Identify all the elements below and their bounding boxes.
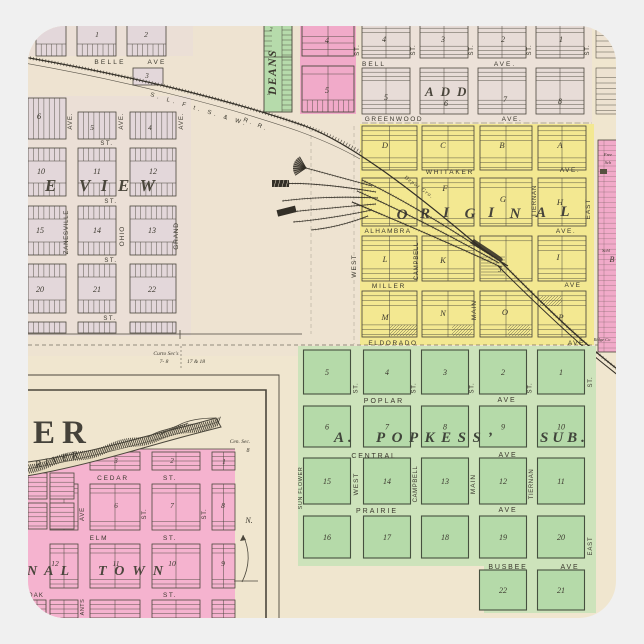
svg-text:AVE.: AVE. — [119, 112, 125, 129]
svg-text:AVE.: AVE. — [560, 167, 580, 174]
svg-text:4: 4 — [382, 35, 386, 44]
svg-text:7: 7 — [170, 501, 174, 510]
svg-text:BUSBEE: BUSBEE — [488, 564, 527, 571]
svg-text:Curto Sec's: Curto Sec's — [153, 351, 178, 357]
svg-text:2: 2 — [144, 30, 148, 39]
svg-text:17: 17 — [383, 533, 392, 542]
svg-text:MILLER: MILLER — [372, 283, 406, 290]
svg-text:6: 6 — [444, 99, 448, 108]
svg-text:ELM: ELM — [90, 535, 109, 542]
svg-text:8: 8 — [221, 501, 225, 510]
svg-text:7- 8: 7- 8 — [160, 359, 169, 365]
svg-text:22: 22 — [499, 586, 507, 595]
svg-text:NAL: NAL — [26, 564, 76, 579]
svg-text:2: 2 — [501, 35, 505, 44]
svg-text:CAMPBELL: CAMPBELL — [413, 466, 419, 503]
svg-text:CENTRAL: CENTRAL — [351, 453, 396, 460]
svg-text:D: D — [381, 140, 389, 150]
svg-text:F: F — [441, 183, 448, 193]
svg-text:ST.: ST. — [412, 382, 418, 393]
svg-text:4: 4 — [385, 368, 389, 377]
svg-text:1: 1 — [222, 458, 226, 466]
svg-text:ST.: ST. — [411, 44, 417, 55]
svg-text:ST.: ST. — [100, 141, 113, 147]
svg-text:POPLAR: POPLAR — [364, 398, 404, 405]
svg-text:AVE: AVE — [80, 507, 86, 521]
svg-text:3: 3 — [442, 368, 447, 377]
svg-text:9: 9 — [501, 423, 505, 432]
svg-text:EAST: EAST — [585, 199, 592, 220]
svg-text:ADD: ADD — [424, 84, 473, 99]
svg-text:ST.: ST. — [163, 592, 177, 599]
svg-text:6: 6 — [114, 501, 118, 510]
svg-text:MAIN: MAIN — [471, 300, 478, 320]
svg-text:AVE: AVE — [561, 564, 580, 571]
svg-text:TIERNAN: TIERNAN — [529, 469, 535, 500]
svg-text:A: A — [556, 140, 563, 150]
svg-text:14: 14 — [383, 477, 391, 486]
svg-text:L: L — [382, 254, 388, 264]
svg-text:AVE: AVE — [499, 452, 518, 459]
svg-text:12: 12 — [499, 477, 507, 486]
svg-text:ANTS: ANTS — [80, 599, 86, 616]
svg-text:ST.: ST. — [528, 382, 534, 393]
svg-text:G: G — [500, 194, 506, 204]
svg-text:ST.: ST. — [470, 382, 476, 393]
svg-text:17 & 18: 17 & 18 — [187, 359, 205, 365]
svg-text:SUN FLOWER: SUN FLOWER — [298, 467, 304, 510]
svg-text:TOWN: TOWN — [98, 564, 171, 579]
svg-text:M: M — [380, 312, 389, 322]
svg-text:MAIN: MAIN — [470, 474, 477, 494]
svg-text:15: 15 — [36, 226, 44, 235]
svg-text:AVE.: AVE. — [179, 112, 185, 129]
svg-text:6: 6 — [325, 423, 329, 432]
svg-text:14: 14 — [93, 226, 101, 235]
svg-text:12: 12 — [149, 167, 157, 176]
svg-text:AVE: AVE — [147, 59, 166, 66]
svg-text:22: 22 — [148, 285, 156, 294]
svg-text:Free: Free — [603, 152, 612, 157]
svg-text:A: A — [535, 205, 546, 221]
svg-text:4: 4 — [148, 123, 152, 132]
svg-text:5: 5 — [90, 123, 94, 132]
svg-text:11: 11 — [557, 477, 564, 486]
svg-text:ST.: ST. — [103, 316, 116, 322]
svg-text:ST.: ST. — [355, 44, 361, 56]
svg-text:ST.: ST. — [163, 535, 177, 542]
svg-text:ST.: ST. — [588, 376, 594, 387]
svg-text:BELLE: BELLE — [94, 59, 125, 66]
svg-text:18: 18 — [441, 533, 449, 542]
svg-text:E: E — [44, 176, 56, 195]
svg-text:WEST: WEST — [353, 473, 360, 496]
svg-text:5: 5 — [325, 368, 329, 377]
svg-text:CEDAR: CEDAR — [97, 475, 129, 482]
svg-text:ST.: ST. — [104, 199, 117, 205]
svg-text:21: 21 — [557, 586, 565, 595]
svg-text:BELL: BELL — [362, 61, 386, 68]
svg-text:10: 10 — [37, 167, 45, 176]
svg-text:3: 3 — [144, 72, 149, 80]
svg-text:DEANS: DEANS — [267, 49, 279, 96]
svg-text:ST.: ST. — [104, 258, 117, 264]
svg-text:16: 16 — [323, 533, 331, 542]
svg-text:I: I — [487, 205, 495, 221]
svg-text:21: 21 — [93, 285, 101, 294]
svg-text:WHITAKER: WHITAKER — [426, 169, 474, 176]
svg-text:13: 13 — [441, 477, 449, 486]
svg-text:1: 1 — [559, 35, 563, 44]
svg-text:AVE: AVE — [499, 507, 518, 514]
svg-text:AVE.: AVE. — [502, 116, 523, 123]
svg-text:19: 19 — [499, 533, 507, 542]
svg-text:VIEW: VIEW — [79, 176, 165, 195]
svg-text:2: 2 — [501, 368, 505, 377]
svg-text:N.: N. — [244, 516, 252, 525]
svg-text:ST.: ST. — [469, 44, 475, 55]
svg-text:AVE.: AVE. — [494, 61, 516, 68]
svg-text:1: 1 — [95, 30, 99, 39]
svg-text:ST.: ST. — [354, 382, 360, 393]
svg-text:OHIO: OHIO — [119, 226, 126, 247]
svg-text:O: O — [502, 307, 508, 317]
svg-text:SUB.: SUB. — [540, 430, 589, 446]
svg-text:ALHAMBRA: ALHAMBRA — [365, 228, 412, 235]
svg-text:13: 13 — [148, 226, 156, 235]
svg-text:ELDORADO: ELDORADO — [368, 340, 417, 347]
svg-text:15: 15 — [323, 477, 331, 486]
svg-text:ST.: ST. — [202, 508, 208, 519]
svg-text:5: 5 — [325, 85, 329, 95]
svg-text:9: 9 — [221, 559, 225, 568]
svg-text:2: 2 — [270, 27, 273, 33]
svg-text:1: 1 — [559, 368, 563, 377]
svg-text:3: 3 — [113, 457, 118, 465]
svg-text:ST.: ST. — [142, 508, 148, 519]
svg-text:PRAIRIE: PRAIRIE — [356, 508, 398, 515]
svg-text:8: 8 — [247, 448, 250, 454]
svg-text:AVE.: AVE. — [68, 112, 74, 129]
svg-text:20: 20 — [36, 285, 44, 294]
svg-text:CAMPBELL: CAMPBELL — [414, 242, 420, 280]
svg-text:POPKESS’: POPKESS’ — [376, 430, 499, 446]
svg-text:ZANESVILLE: ZANESVILLE — [64, 210, 70, 254]
svg-text:B: B — [499, 140, 504, 150]
svg-text:AVE: AVE — [564, 282, 581, 289]
svg-text:ST.: ST. — [585, 44, 591, 55]
svg-text:Sch: Sch — [605, 160, 612, 165]
svg-text:Schl: Schl — [602, 248, 610, 253]
svg-text:G: G — [465, 206, 476, 222]
svg-text:ST.: ST. — [163, 475, 177, 482]
svg-text:AVE.: AVE. — [556, 228, 576, 235]
svg-text:C: C — [440, 140, 446, 150]
svg-text:WEST: WEST — [351, 254, 358, 278]
svg-text:3: 3 — [440, 35, 445, 44]
svg-text:GRAND: GRAND — [173, 222, 180, 249]
svg-text:B: B — [610, 255, 615, 264]
svg-text:5: 5 — [384, 93, 388, 102]
svg-text:20: 20 — [557, 533, 565, 542]
svg-text:A.: A. — [333, 430, 356, 446]
svg-text:Ridge Co: Ridge Co — [593, 337, 612, 342]
svg-text:L: L — [559, 204, 569, 220]
svg-text:ER: ER — [33, 415, 93, 451]
svg-text:N: N — [509, 206, 522, 222]
svg-text:8: 8 — [558, 97, 562, 106]
svg-text:Cen. Sec.: Cen. Sec. — [230, 439, 251, 445]
svg-text:GREENWOOD: GREENWOOD — [365, 116, 423, 123]
svg-text:ST.: ST. — [527, 44, 533, 55]
svg-text:11: 11 — [93, 167, 100, 176]
svg-text:AVE: AVE — [498, 397, 517, 404]
svg-text:EAST: EAST — [588, 537, 594, 556]
svg-text:2: 2 — [170, 457, 174, 465]
